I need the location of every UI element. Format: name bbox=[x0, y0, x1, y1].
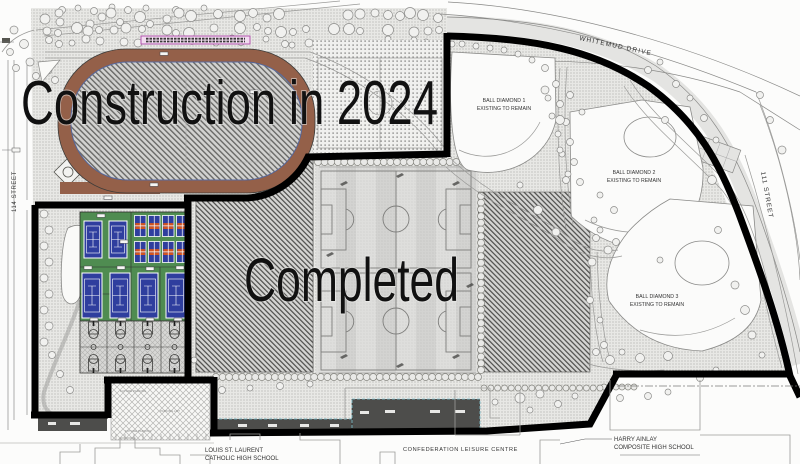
svg-text:FUTURE PARKING: FUTURE PARKING bbox=[125, 429, 152, 433]
svg-text:EXISTING TO REMAIN: EXISTING TO REMAIN bbox=[630, 302, 685, 308]
svg-text:BALL DIAMOND 1: BALL DIAMOND 1 bbox=[483, 98, 526, 104]
svg-text:EXISTING TO REMAIN: EXISTING TO REMAIN bbox=[477, 106, 532, 112]
svg-text:PARKING LOT: PARKING LOT bbox=[160, 409, 180, 413]
svg-text:CATHOLIC HIGH SCHOOL: CATHOLIC HIGH SCHOOL bbox=[205, 456, 279, 462]
svg-text:COMPOSITE HIGH SCHOOL: COMPOSITE HIGH SCHOOL bbox=[614, 445, 694, 451]
svg-text:Construction in 2024: Construction in 2024 bbox=[21, 69, 438, 138]
svg-text:EXISTING TO REMAIN: EXISTING TO REMAIN bbox=[607, 178, 662, 184]
svg-text:CONFEDERATION LEISURE CENTRE: CONFEDERATION LEISURE CENTRE bbox=[403, 447, 518, 453]
svg-text:HARRY AINLAY: HARRY AINLAY bbox=[614, 437, 657, 443]
svg-text:BALL DIAMOND 2: BALL DIAMOND 2 bbox=[613, 170, 656, 176]
svg-text:BALL DIAMOND 3: BALL DIAMOND 3 bbox=[636, 294, 679, 300]
svg-text:FUTURE PARKING: FUTURE PARKING bbox=[120, 389, 147, 393]
svg-text:Completed: Completed bbox=[244, 246, 459, 314]
svg-text:LOUIS ST. LAURENT: LOUIS ST. LAURENT bbox=[205, 448, 263, 454]
svg-text:114 STREET: 114 STREET bbox=[12, 171, 18, 212]
